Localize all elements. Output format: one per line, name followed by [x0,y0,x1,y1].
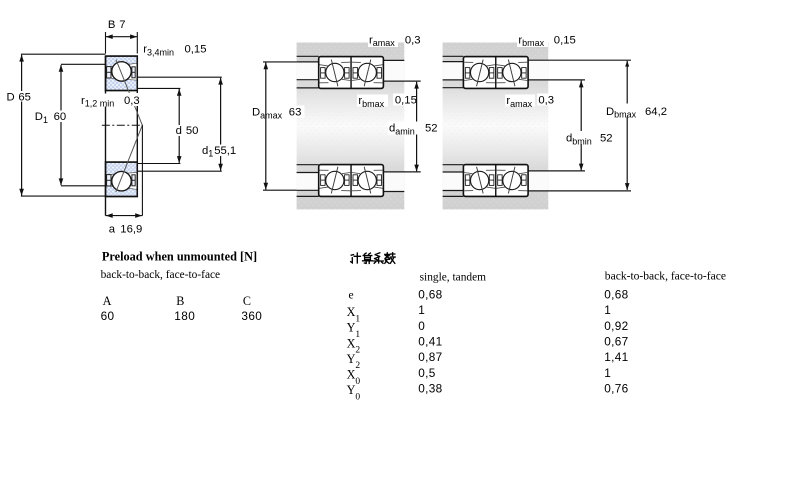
svg-text:16,9: 16,9 [120,223,142,235]
svg-text:0,67: 0,67 [604,335,628,349]
svg-text:r3,4min: r3,4min [143,44,174,58]
svg-text:0: 0 [418,319,425,333]
svg-text:60: 60 [54,111,67,123]
svg-text:0,3: 0,3 [538,94,554,106]
svg-text:a: a [109,223,116,235]
svg-text:64,2: 64,2 [645,106,667,118]
svg-text:B: B [176,294,184,308]
svg-text:65: 65 [18,91,31,103]
svg-text:C: C [243,294,251,308]
svg-text:0,3: 0,3 [124,95,140,107]
svg-text:D: D [7,91,15,103]
svg-text:360: 360 [241,309,262,323]
svg-text:single, tandem: single, tandem [420,272,487,284]
svg-text:B: B [108,19,116,31]
svg-text:d: d [176,125,182,137]
svg-text:63: 63 [289,107,302,119]
svg-text:1: 1 [418,303,425,317]
svg-text:A: A [103,294,112,308]
svg-text:0,41: 0,41 [418,335,442,349]
svg-text:0,5: 0,5 [418,366,435,380]
svg-text:7: 7 [119,19,125,31]
svg-text:1: 1 [604,366,611,380]
svg-text:1: 1 [604,303,611,317]
svg-text:60: 60 [101,309,115,323]
svg-text:0,87: 0,87 [418,350,442,364]
svg-text:50: 50 [186,125,199,137]
svg-text:52: 52 [425,123,438,135]
svg-text:back-to-back, face-to-face: back-to-back, face-to-face [101,269,221,281]
svg-text:55,1: 55,1 [214,145,236,157]
svg-text:180: 180 [174,309,195,323]
svg-text:1,41: 1,41 [604,350,628,364]
svg-text:0,68: 0,68 [604,288,628,302]
svg-text:0,92: 0,92 [604,319,628,333]
svg-text:0,76: 0,76 [604,381,628,395]
svg-text:d1: d1 [202,145,213,159]
svg-text:0,15: 0,15 [395,95,417,107]
svg-text:52: 52 [600,133,613,145]
svg-text:0,68: 0,68 [418,288,442,302]
svg-text:0,15: 0,15 [554,34,576,46]
svg-text:0,3: 0,3 [405,34,421,46]
svg-text:Preload when unmounted [N]: Preload when unmounted [N] [102,249,257,263]
svg-text:0,15: 0,15 [185,44,207,56]
svg-text:back-to-back, face-to-face: back-to-back, face-to-face [605,271,726,283]
svg-text:D1: D1 [35,111,48,125]
svg-text:0,38: 0,38 [418,381,442,395]
svg-text:e: e [349,290,354,302]
svg-text:Damax: Damax [252,107,283,121]
